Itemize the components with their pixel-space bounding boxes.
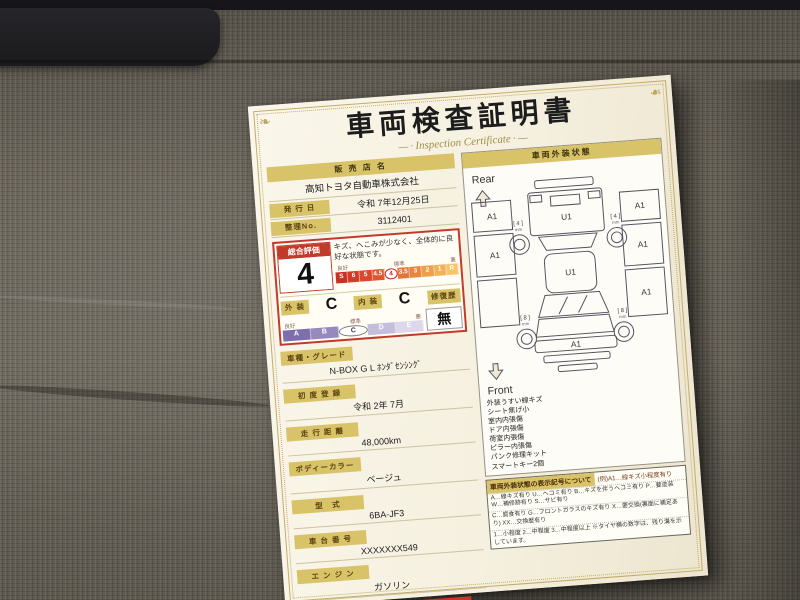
overall-rating-panel: 総合評価 4	[276, 242, 333, 294]
repair-history-label: 修復歴	[427, 288, 461, 304]
certified-inspector-badge: トヨタ認定車両検査員	[377, 596, 473, 600]
mark-roof: U1	[565, 267, 577, 277]
exterior-grade-label: 外 装	[280, 299, 309, 315]
scale-cell: 6	[348, 271, 361, 283]
overall-rating-value: 4	[278, 256, 332, 293]
car-diagram-svg: Rear Front U1 U1 A1 A1 A1 A1 A1 A1 [ 4 ]	[465, 156, 677, 399]
mark-right-fender: A1	[641, 287, 652, 297]
couch-shadow-right	[710, 80, 800, 600]
symbol-legend: 車両外装状態の表示記号について (例)A1…線キズ小程度有り A…線キズ有り U…	[485, 464, 691, 550]
mark-left-quarter: A1	[487, 212, 498, 222]
mark-front-bumper: A1	[571, 339, 582, 349]
grade-cell: B	[311, 326, 340, 339]
repair-history-value: 無	[425, 306, 463, 331]
scale-cell: S	[335, 272, 348, 284]
condition-notes: 外装うすい線キズ シート焦げ小 室内内張傷 ドア内張傷 荷室内張傷 ピラー内張傷…	[480, 384, 684, 475]
mark-left-door: A1	[490, 251, 501, 261]
scale-cell-selected: 4	[384, 268, 398, 280]
scale-cell: 1	[434, 264, 447, 276]
scale-cell: 3	[409, 266, 422, 278]
issue-date-label: 発 行 日	[269, 200, 330, 218]
manage-no-label: 整理No.	[270, 218, 331, 236]
scale-label-mid: 標準	[350, 317, 362, 326]
couch-seam	[0, 60, 800, 63]
scale-cell: 5	[360, 270, 373, 282]
inspection-certificate: ❧ ❧ 車両検査証明書 Inspection Certificate 販 売 店…	[248, 75, 708, 600]
flourish-icon: ❧	[650, 84, 663, 102]
photo-scene: ❧ ❧ 車両検査証明書 Inspection Certificate 販 売 店…	[0, 0, 800, 600]
mark-right-door: A1	[637, 239, 648, 249]
exterior-grade-value: C	[310, 294, 352, 315]
scale-cell: 4.5	[372, 269, 385, 281]
interior-grade-label: 内 装	[354, 294, 383, 310]
flourish-icon: ❧	[258, 113, 271, 131]
tread-unit: mm	[619, 314, 627, 320]
grade-cell: A	[283, 328, 312, 341]
front-arrow-icon	[489, 363, 504, 380]
front-label: Front	[487, 384, 513, 398]
dark-object-top-left	[0, 8, 220, 66]
interior-grade-value: C	[383, 289, 425, 310]
grade-cell: E	[395, 320, 424, 333]
tread-unit: mm	[515, 227, 523, 233]
couch-fold-highlight	[0, 293, 240, 311]
left-column: 販 売 店 名 高知トヨタ自動車株式会社 発 行 日 令和 7年12月25日 整…	[266, 153, 492, 600]
scale-cell: 2	[422, 265, 435, 277]
right-column: 車両外装状態	[461, 137, 700, 600]
mark-right-quarter: A1	[635, 201, 646, 211]
grade-cell-selected: C	[338, 324, 368, 337]
overall-rating-box: 総合評価 4 キズ、へこみが少なく、全体的に良好な状態です。 良好 標準 悪	[272, 228, 467, 346]
car-damage-diagram: Rear Front U1 U1 A1 A1 A1 A1 A1 A1 [ 4 ]	[463, 154, 679, 399]
rear-arrow-icon	[476, 190, 491, 207]
certificate-border: ❧ ❧ 車両検査証明書 Inspection Certificate 販 売 店…	[253, 80, 703, 600]
couch-fold-shadow	[0, 382, 270, 410]
mark-rear-gate: U1	[561, 212, 573, 222]
scale-cell: 3.5	[397, 267, 410, 279]
tread-unit: mm	[522, 321, 530, 327]
grade-cell: D	[367, 322, 396, 335]
exterior-condition-box: 車両外装状態	[461, 137, 686, 476]
tread-unit: mm	[612, 219, 620, 225]
scale-cell: R	[446, 263, 459, 275]
rear-label: Rear	[471, 173, 495, 187]
